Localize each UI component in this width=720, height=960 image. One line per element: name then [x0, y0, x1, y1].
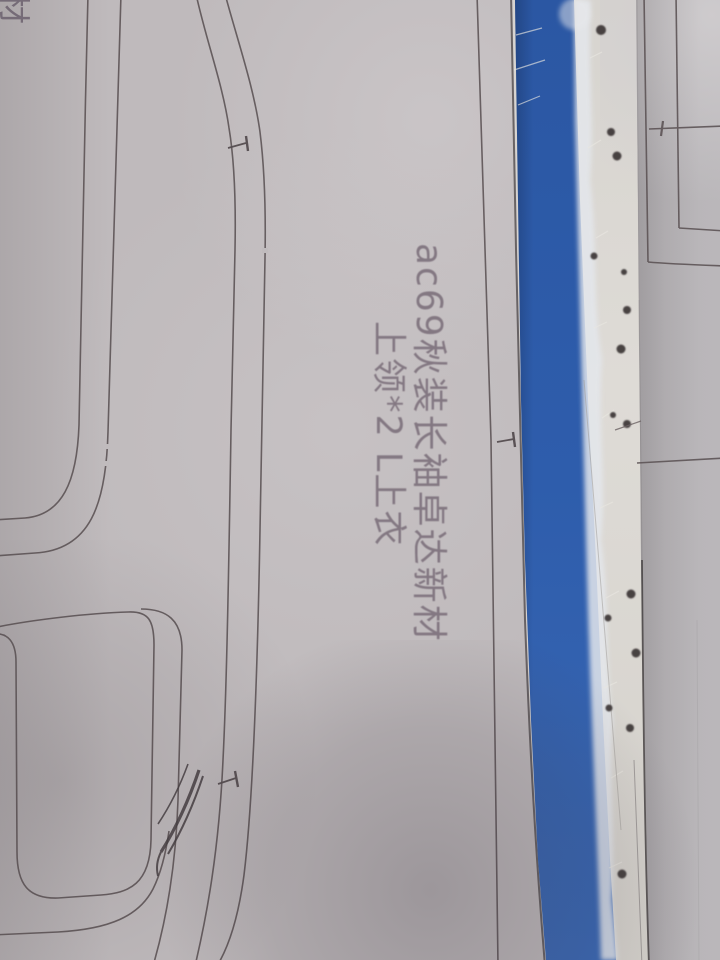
corner-text-fragment: 材	[0, 0, 39, 24]
handwritten-annotation: ac69秋装长袖卓达新材 上领*2 L上衣	[367, 243, 449, 643]
pattern-scene	[0, 0, 720, 960]
annotation-line-2: 上领*2 L上衣	[367, 243, 408, 643]
photo-of-pattern-paper: ac69秋装长袖卓达新材 上领*2 L上衣 材	[0, 0, 720, 960]
annotation-line-1: ac69秋装长袖卓达新材	[408, 243, 449, 643]
